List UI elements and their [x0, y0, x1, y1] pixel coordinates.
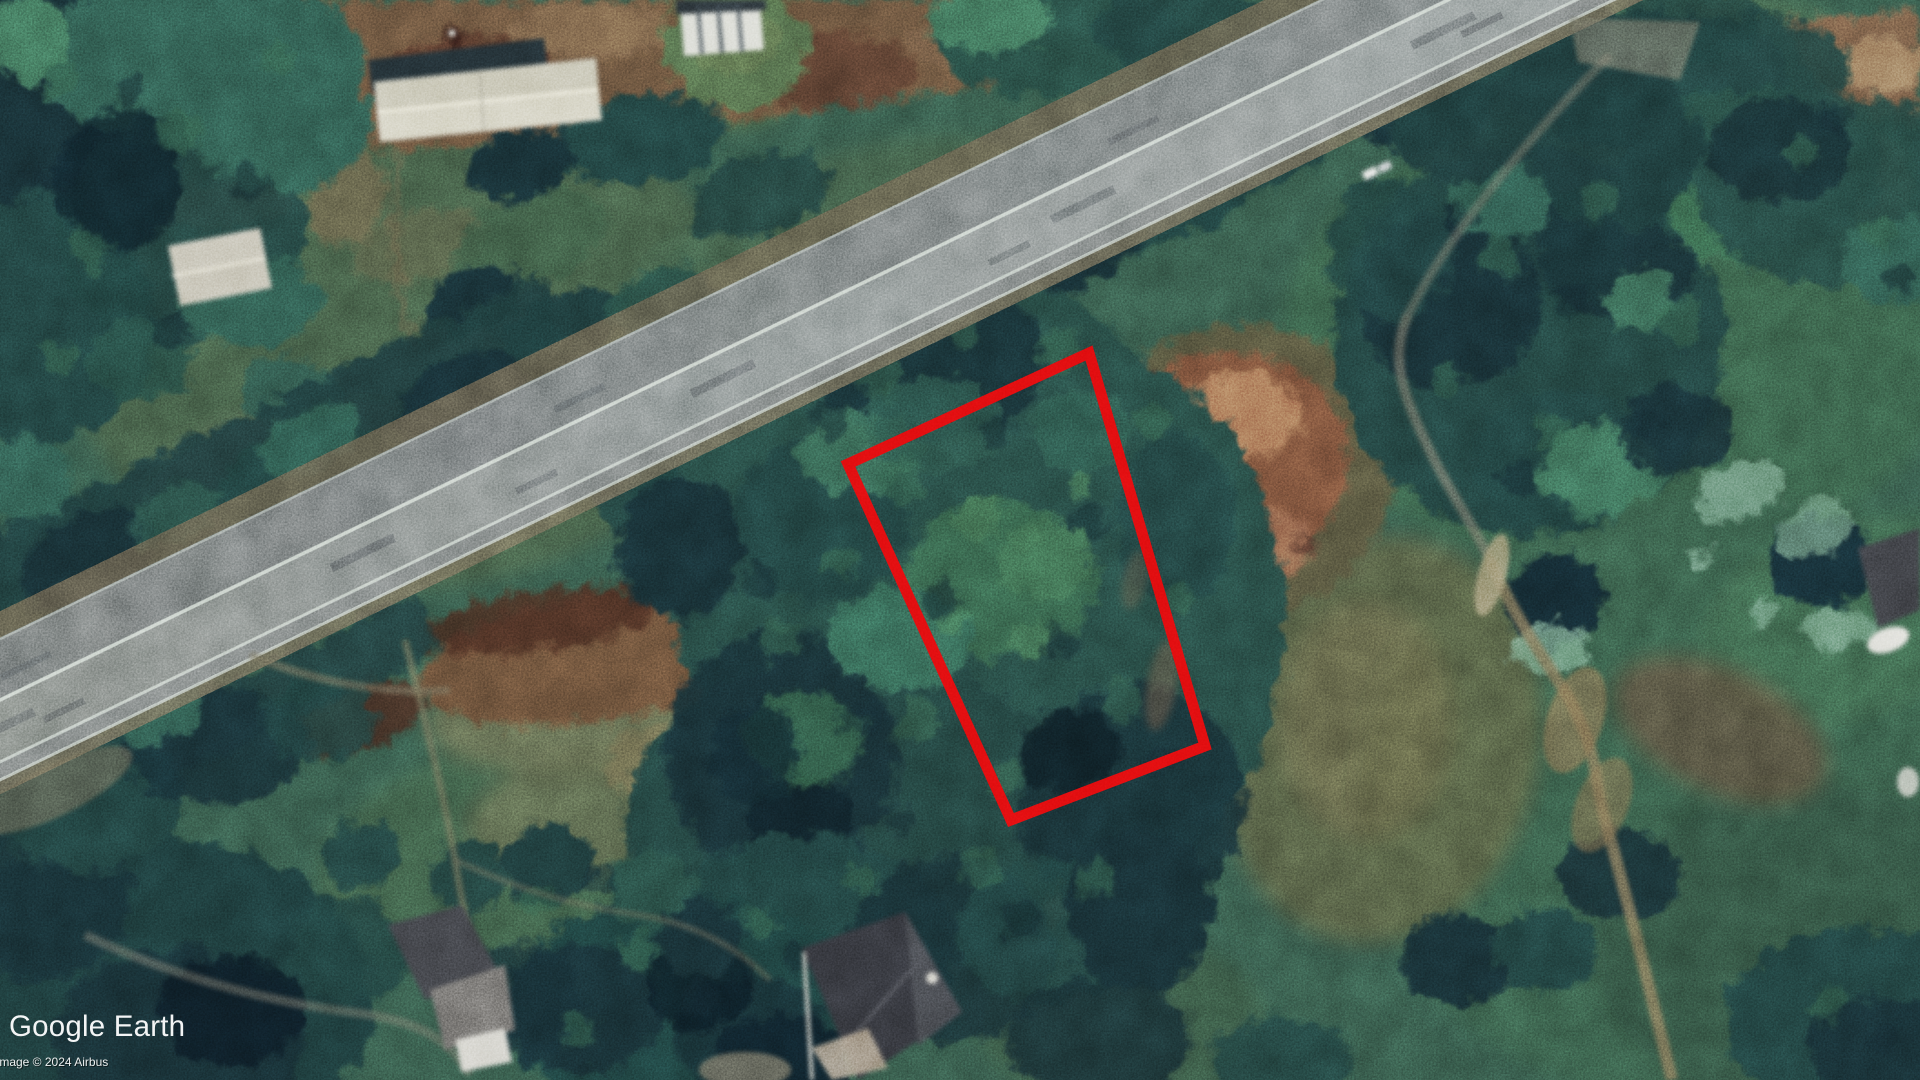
svg-text:Google Earth: Google Earth	[9, 1010, 185, 1043]
svg-text:Image © 2024 Airbus: Image © 2024 Airbus	[0, 1055, 108, 1069]
